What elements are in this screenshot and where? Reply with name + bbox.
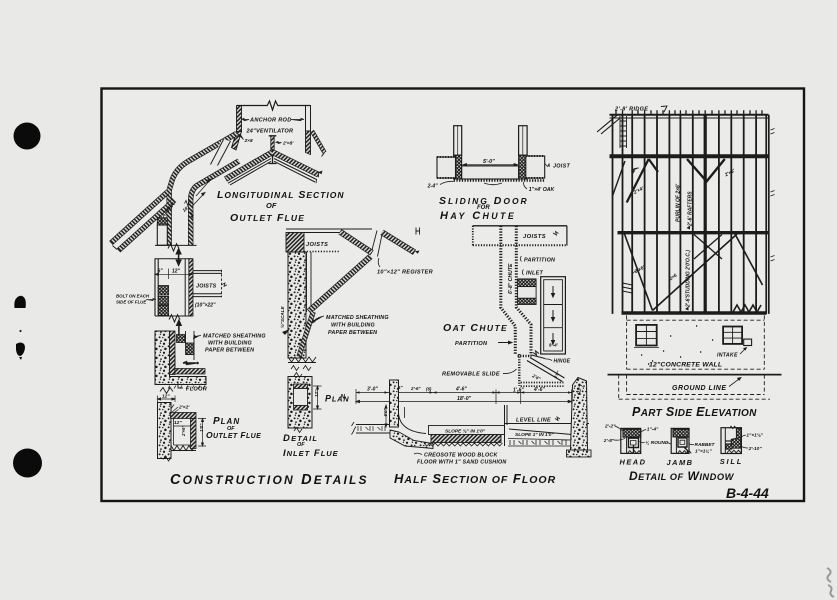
svg-text:1"×1¼": 1"×1¼"	[695, 449, 712, 455]
svg-text:10"×12" REGISTER: 10"×12" REGISTER	[377, 270, 433, 276]
svg-text:JOIST: JOIST	[553, 164, 570, 170]
svg-text:ANCHOR ROD: ANCHOR ROD	[249, 118, 292, 124]
svg-text:12": 12"	[314, 389, 319, 397]
svg-text:B-4-44: B-4-44	[726, 485, 769, 501]
svg-text:24"VENTILATOR: 24"VENTILATOR	[246, 129, 294, 135]
svg-text:12": 12"	[172, 268, 181, 274]
svg-text:2'×8': 2'×8'	[282, 141, 294, 147]
svg-text:PAPER BETWEEN: PAPER BETWEEN	[328, 330, 377, 336]
svg-text:CREOSOTE WOOD BLOCK: CREOSOTE WOOD BLOCK	[424, 453, 498, 459]
svg-text:PARTITION: PARTITION	[524, 258, 555, 264]
svg-text:6'-8" CHUTE: 6'-8" CHUTE	[508, 263, 514, 294]
svg-text:3'-0": 3'-0"	[367, 387, 378, 393]
svg-text:OF: OF	[297, 442, 305, 448]
svg-text:1"-4": 1"-4"	[647, 427, 659, 433]
svg-text:JOISTS: JOISTS	[196, 284, 217, 290]
svg-text:2-4": 2-4"	[427, 184, 438, 190]
svg-text:CONSTRUCTION DETAILS: CONSTRUCTION DETAILS	[170, 472, 369, 488]
svg-text:2'-6": 2'-6"	[410, 386, 421, 391]
svg-text:DETAIL OF WINDOW: DETAIL OF WINDOW	[629, 469, 735, 483]
svg-text:6'0": 6'0"	[383, 408, 388, 417]
svg-text:FLOOR WITH 1" SAND CUSHION: FLOOR WITH 1" SAND CUSHION	[417, 460, 507, 466]
svg-text:2'-2": 2'-2"	[604, 423, 616, 429]
svg-text:WITH BUILDING: WITH BUILDING	[331, 323, 376, 329]
svg-text:HINGE: HINGE	[554, 359, 571, 365]
svg-text:INTAKE: INTAKE	[717, 353, 738, 359]
svg-text:WITH BUILDING: WITH BUILDING	[208, 341, 253, 347]
svg-text:½"SCALE: ½"SCALE	[279, 305, 285, 328]
svg-text:LEVEL LINE: LEVEL LINE	[516, 418, 551, 424]
svg-text:¼ ROUND: ¼ ROUND	[645, 440, 668, 446]
svg-text:HAY CHUTE: HAY CHUTE	[440, 210, 516, 222]
svg-text:REMOVABLE SLIDE: REMOVABLE SLIDE	[442, 372, 500, 378]
svg-text:INLET FLUE: INLET FLUE	[283, 448, 339, 459]
svg-text:12"CONCRETE WALL: 12"CONCRETE WALL	[649, 362, 722, 369]
svg-text:BOLT ON EACH: BOLT ON EACH	[116, 294, 150, 299]
svg-text:2'×2': 2'×2'	[178, 405, 190, 411]
svg-text:PURLIN OF 2×6': PURLIN OF 2×6'	[676, 183, 682, 222]
svg-text:PARTITION: PARTITION	[455, 341, 488, 347]
svg-text:1"×4' OAK: 1"×4' OAK	[529, 187, 556, 193]
svg-text:INLET: INLET	[526, 271, 543, 277]
svg-text:1'-6": 1'-6"	[513, 388, 524, 394]
svg-text:2'-8' RIDGE: 2'-8' RIDGE	[614, 107, 648, 113]
svg-text:5'-0": 5'-0"	[483, 159, 495, 165]
svg-text:(10"×22": (10"×22"	[195, 303, 216, 309]
svg-text:2'×6': 2'×6'	[181, 426, 186, 437]
svg-text:4'-6": 4'-6"	[455, 387, 467, 393]
svg-text:JOISTS: JOISTS	[306, 242, 328, 248]
svg-text:4'-6": 4'-6"	[533, 387, 545, 393]
svg-text:HEAD: HEAD	[620, 458, 647, 467]
svg-text:2'-6'STUDDING 2'0'O.C.): 2'-6'STUDDING 2'0'O.C.)	[686, 250, 692, 308]
svg-text:MATCHED SHEATHING: MATCHED SHEATHING	[203, 334, 266, 340]
svg-text:FLOOR: FLOOR	[186, 387, 207, 393]
svg-text:1'0": 1'0"	[199, 423, 204, 432]
svg-text:N: N	[341, 395, 346, 401]
svg-text:LONGITUDINAL SECTION: LONGITUDINAL SECTION	[217, 189, 345, 201]
svg-text:12": 12"	[162, 394, 170, 400]
svg-text:18'-0": 18'-0"	[457, 396, 472, 402]
svg-text:8'-4': 8'-4'	[549, 343, 559, 348]
svg-text:2'-10": 2'-10"	[748, 446, 763, 452]
svg-text:2×8: 2×8	[244, 138, 253, 144]
svg-text:OUTLET FLUE: OUTLET FLUE	[230, 212, 305, 224]
svg-text:SILL: SILL	[720, 457, 743, 466]
svg-text:6": 6"	[158, 268, 164, 274]
svg-text:(6): (6)	[426, 387, 432, 392]
svg-text:PART SIDE ELEVATION: PART SIDE ELEVATION	[632, 405, 757, 419]
svg-text:MATCHED SHEATHING: MATCHED SHEATHING	[326, 315, 389, 321]
svg-text:2'-8": 2'-8"	[603, 438, 615, 444]
svg-text:12": 12"	[174, 420, 182, 426]
svg-text:OF: OF	[266, 201, 277, 210]
svg-text:SIDE OF FLUE: SIDE OF FLUE	[116, 300, 147, 305]
svg-text:HALF SECTION OF FLOOR: HALF SECTION OF FLOOR	[394, 471, 556, 486]
svg-text:SLOPE ⅜" IN 1'0": SLOPE ⅜" IN 1'0"	[445, 429, 486, 435]
svg-text:1"×1⅛": 1"×1⅛"	[746, 433, 763, 439]
svg-text:2'-6' RAFTERS: 2'-6' RAFTERS	[688, 191, 694, 227]
svg-text:PLAN: PLAN	[325, 394, 349, 404]
svg-text:GROUND LINE: GROUND LINE	[672, 385, 727, 392]
svg-text:JAMB: JAMB	[667, 458, 694, 467]
svg-text:OAT CHUTE: OAT CHUTE	[443, 322, 508, 334]
svg-text:OF: OF	[227, 426, 235, 432]
svg-text:JOISTS: JOISTS	[523, 234, 546, 240]
svg-text:RABBET: RABBET	[695, 442, 716, 448]
svg-text:PAPER BETWEEN: PAPER BETWEEN	[205, 348, 254, 354]
